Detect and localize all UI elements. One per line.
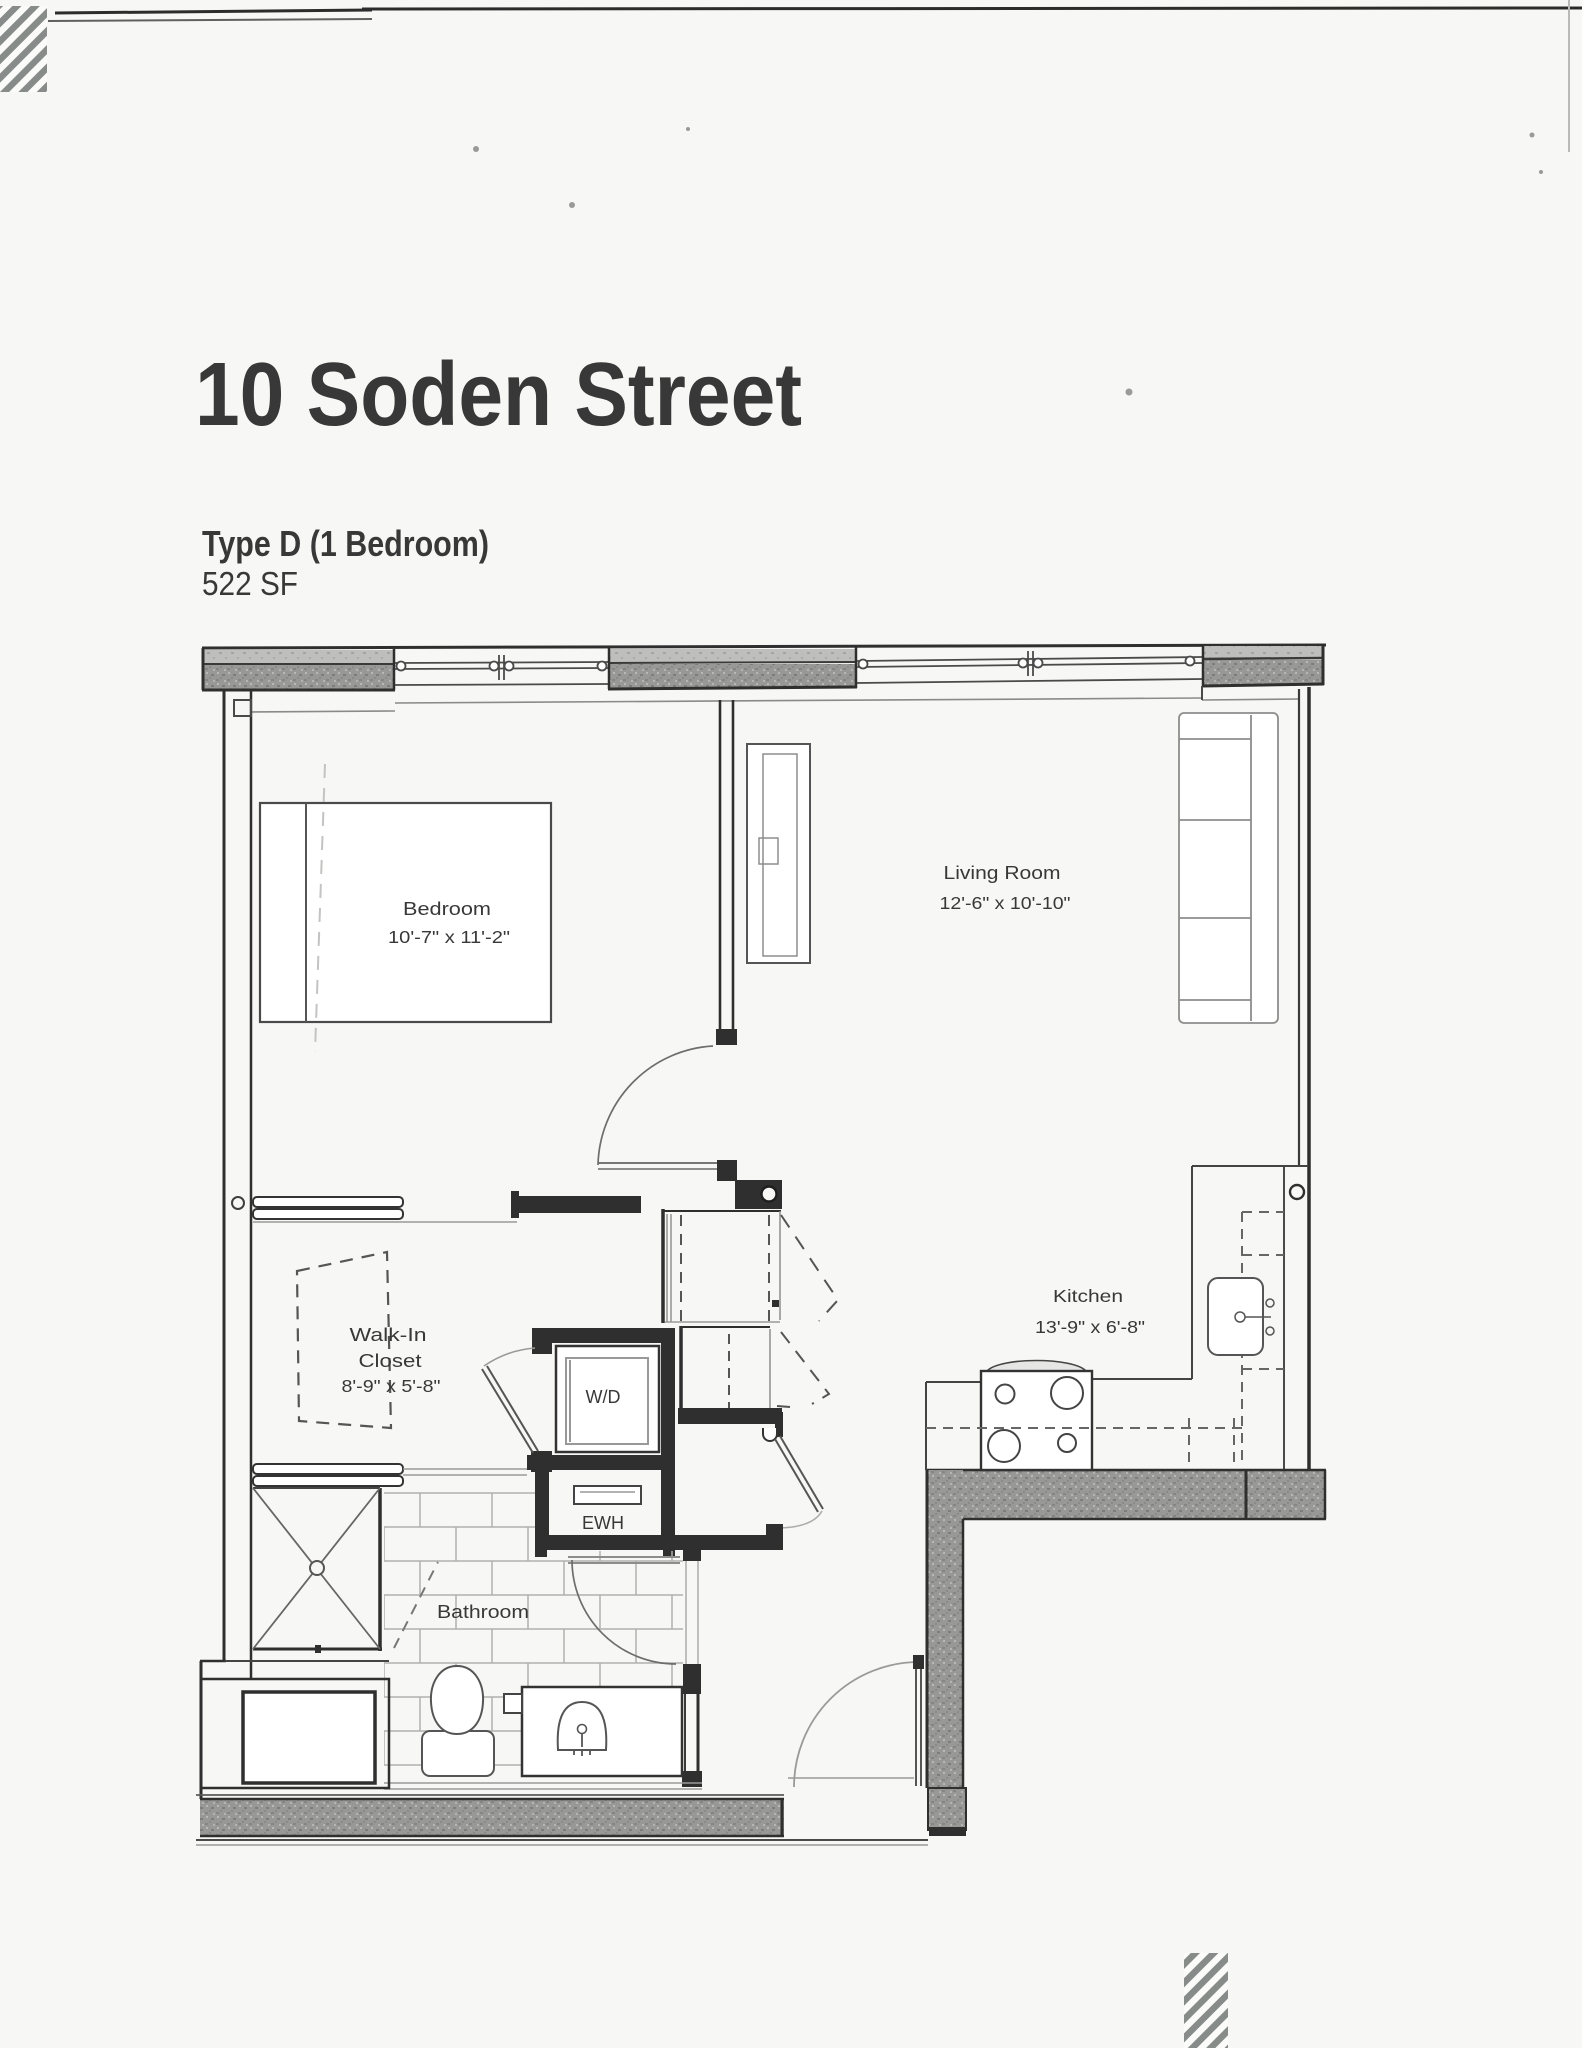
svg-text:10'-7" x 11'-2": 10'-7" x 11'-2" [388, 927, 510, 947]
svg-text:Walk-In: Walk-In [350, 1325, 427, 1345]
svg-text:Closet: Closet [359, 1351, 422, 1371]
svg-text:W/D: W/D [586, 1387, 621, 1407]
svg-text:13'-9" x 6'-8": 13'-9" x 6'-8" [1035, 1317, 1145, 1337]
svg-text:Type D (1 Bedroom): Type D (1 Bedroom) [202, 523, 489, 564]
svg-text:Bedroom: Bedroom [403, 899, 491, 919]
svg-text:12'-6" x 10'-10": 12'-6" x 10'-10" [940, 893, 1071, 913]
svg-text:522 SF: 522 SF [202, 565, 298, 602]
svg-text:EWH: EWH [582, 1513, 624, 1533]
svg-text:Living Room: Living Room [944, 863, 1061, 883]
svg-text:8'-9" x 5'-8": 8'-9" x 5'-8" [342, 1376, 441, 1396]
svg-text:10 Soden Street: 10 Soden Street [195, 345, 802, 445]
svg-text:Kitchen: Kitchen [1053, 1286, 1123, 1306]
svg-text:Bathroom: Bathroom [437, 1602, 529, 1622]
